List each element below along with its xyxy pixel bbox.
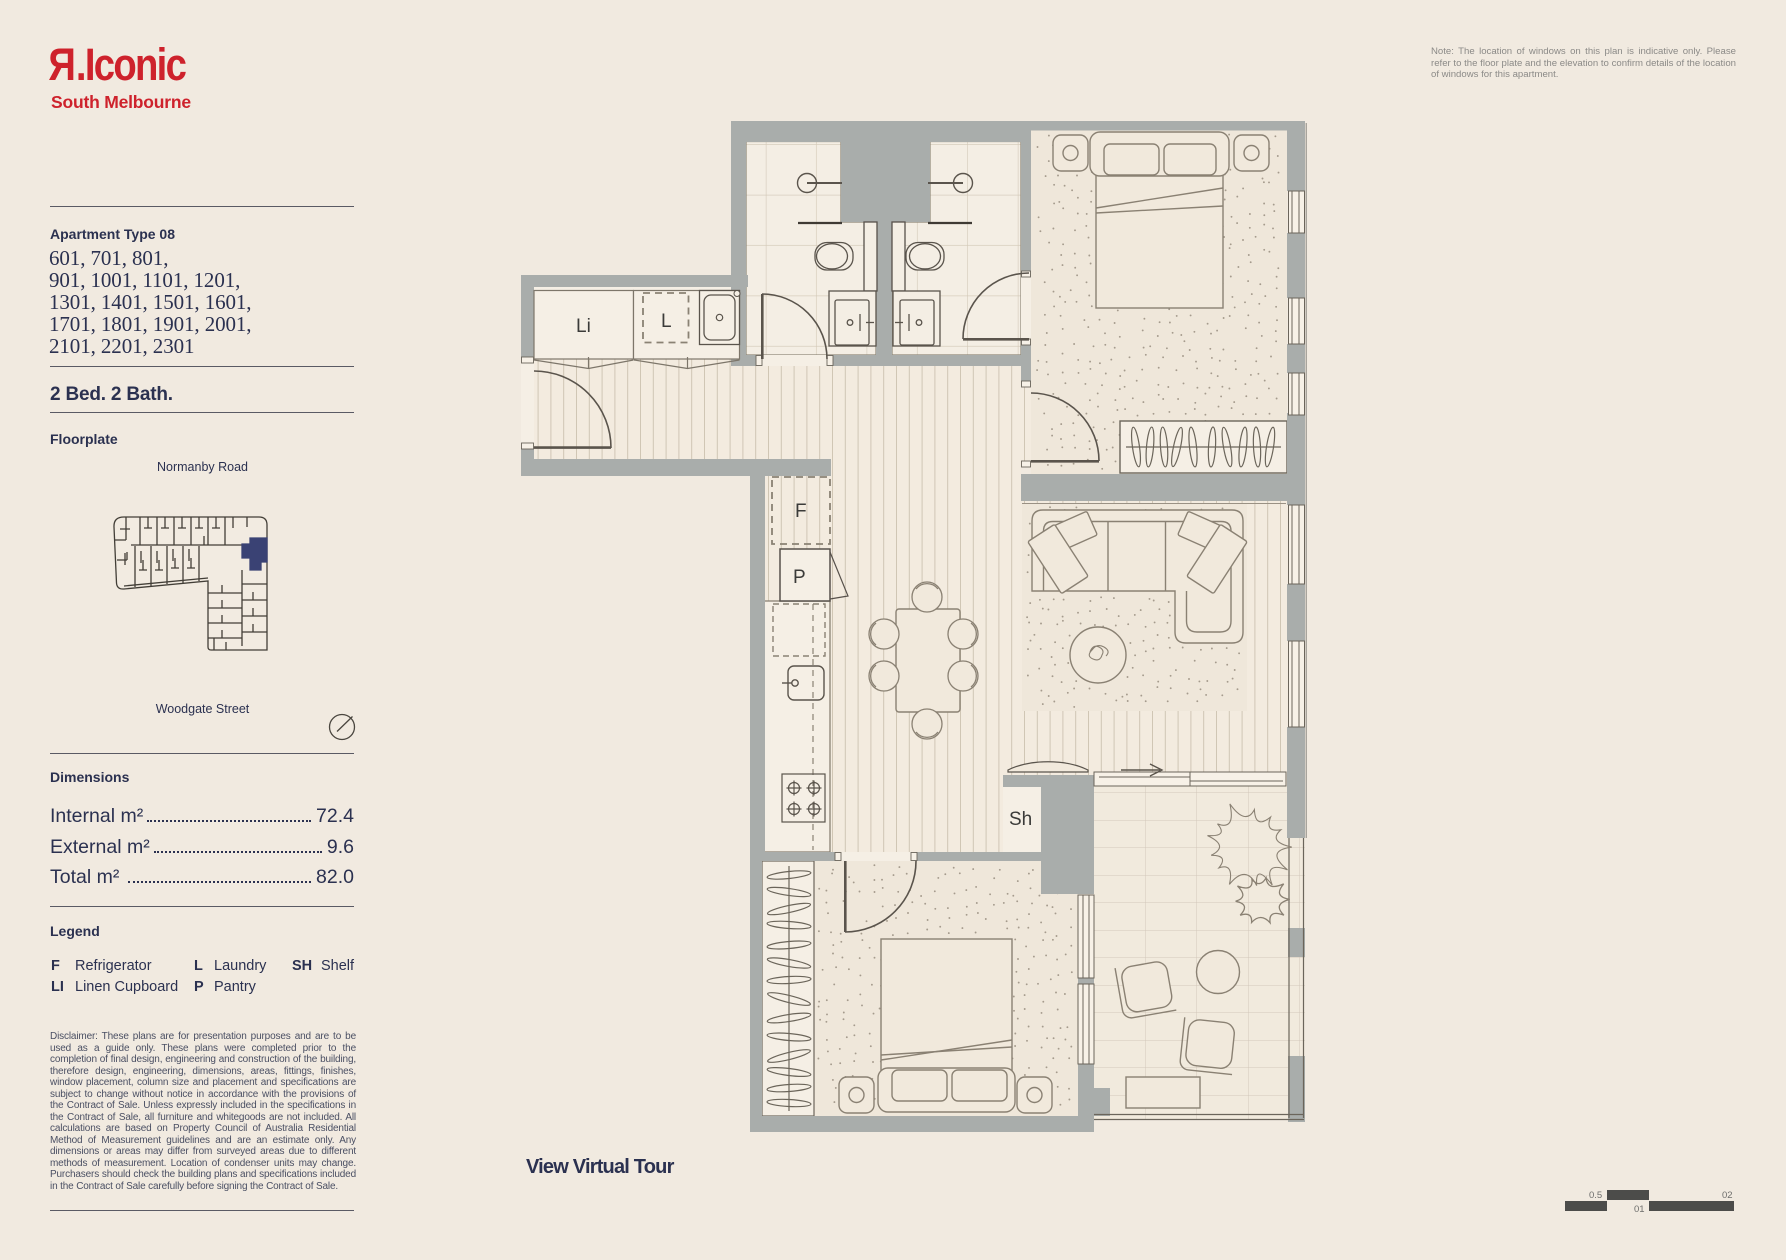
svg-text:0.5: 0.5 — [1589, 1190, 1602, 1201]
svg-text:F: F — [795, 501, 807, 522]
svg-text:Li: Li — [576, 316, 591, 337]
svg-text:Sh: Sh — [1009, 809, 1032, 830]
svg-text:L: L — [661, 311, 672, 332]
svg-text:02: 02 — [1722, 1190, 1733, 1201]
svg-text:P: P — [793, 567, 806, 588]
svg-text:01: 01 — [1634, 1204, 1645, 1215]
